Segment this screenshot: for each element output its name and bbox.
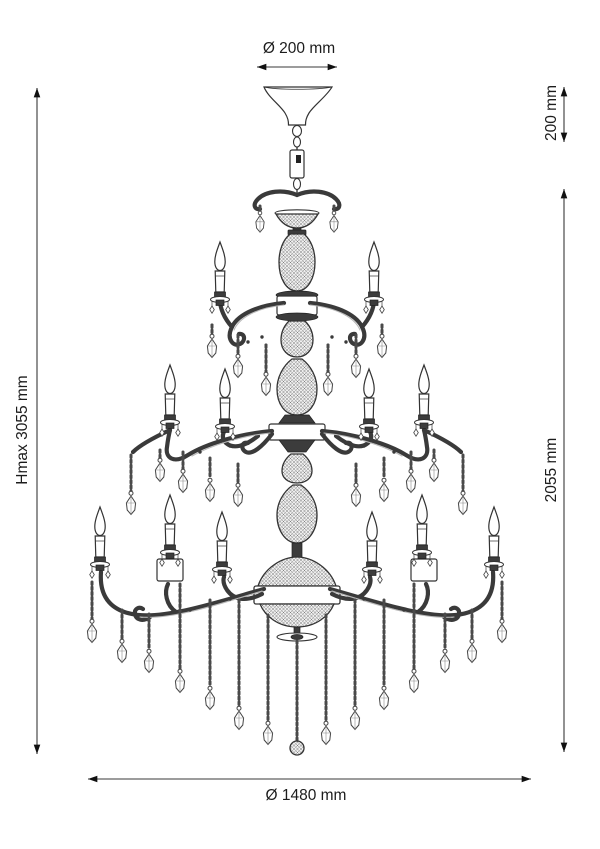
bottom-bowl-dome — [258, 557, 336, 586]
candle — [362, 512, 383, 583]
diagram-canvas: Ø 200 mm Hmax 3055 mm 200 mm 2055 mm Ø 1… — [0, 0, 600, 849]
suspension-chain — [290, 125, 304, 196]
candle — [212, 512, 233, 583]
chandelier-dimension-diagram: Ø 200 mm Hmax 3055 mm 200 mm 2055 mm Ø 1… — [0, 0, 600, 849]
chandelier-drawing — [87, 87, 506, 755]
candle — [160, 495, 181, 566]
dimension-canopy-diameter: Ø 200 mm — [257, 40, 337, 67]
bottom-ball — [290, 741, 304, 755]
central-column — [254, 230, 340, 641]
body-diameter-label: Ø 1480 mm — [266, 787, 347, 804]
dimension-body-height: 2055 mm — [543, 189, 564, 752]
canopy-diameter-label: Ø 200 mm — [263, 40, 335, 57]
candle — [484, 507, 505, 578]
candle — [359, 369, 380, 440]
dimension-suspension-height: 200 mm — [543, 85, 564, 142]
candle — [90, 507, 111, 578]
hub-band-tier3 — [254, 586, 340, 604]
dimension-body-diameter: Ø 1480 mm — [88, 779, 531, 804]
dimension-max-height: Hmax 3055 mm — [14, 88, 37, 754]
top-scroll-ornament — [255, 192, 340, 234]
candle — [160, 365, 181, 436]
max-height-label: Hmax 3055 mm — [14, 375, 31, 484]
center-drop-and-ball — [290, 641, 304, 755]
candle — [210, 242, 231, 313]
candle — [364, 242, 385, 313]
hub-band-tier2 — [269, 424, 325, 440]
candle — [412, 495, 433, 566]
candle — [215, 369, 236, 440]
suspension-height-label: 200 mm — [543, 85, 560, 141]
crystal-pendant — [256, 211, 264, 232]
crystal-pendant — [330, 211, 338, 232]
candle — [414, 365, 435, 436]
body-height-label: 2055 mm — [543, 438, 560, 503]
ceiling-canopy — [264, 87, 332, 125]
